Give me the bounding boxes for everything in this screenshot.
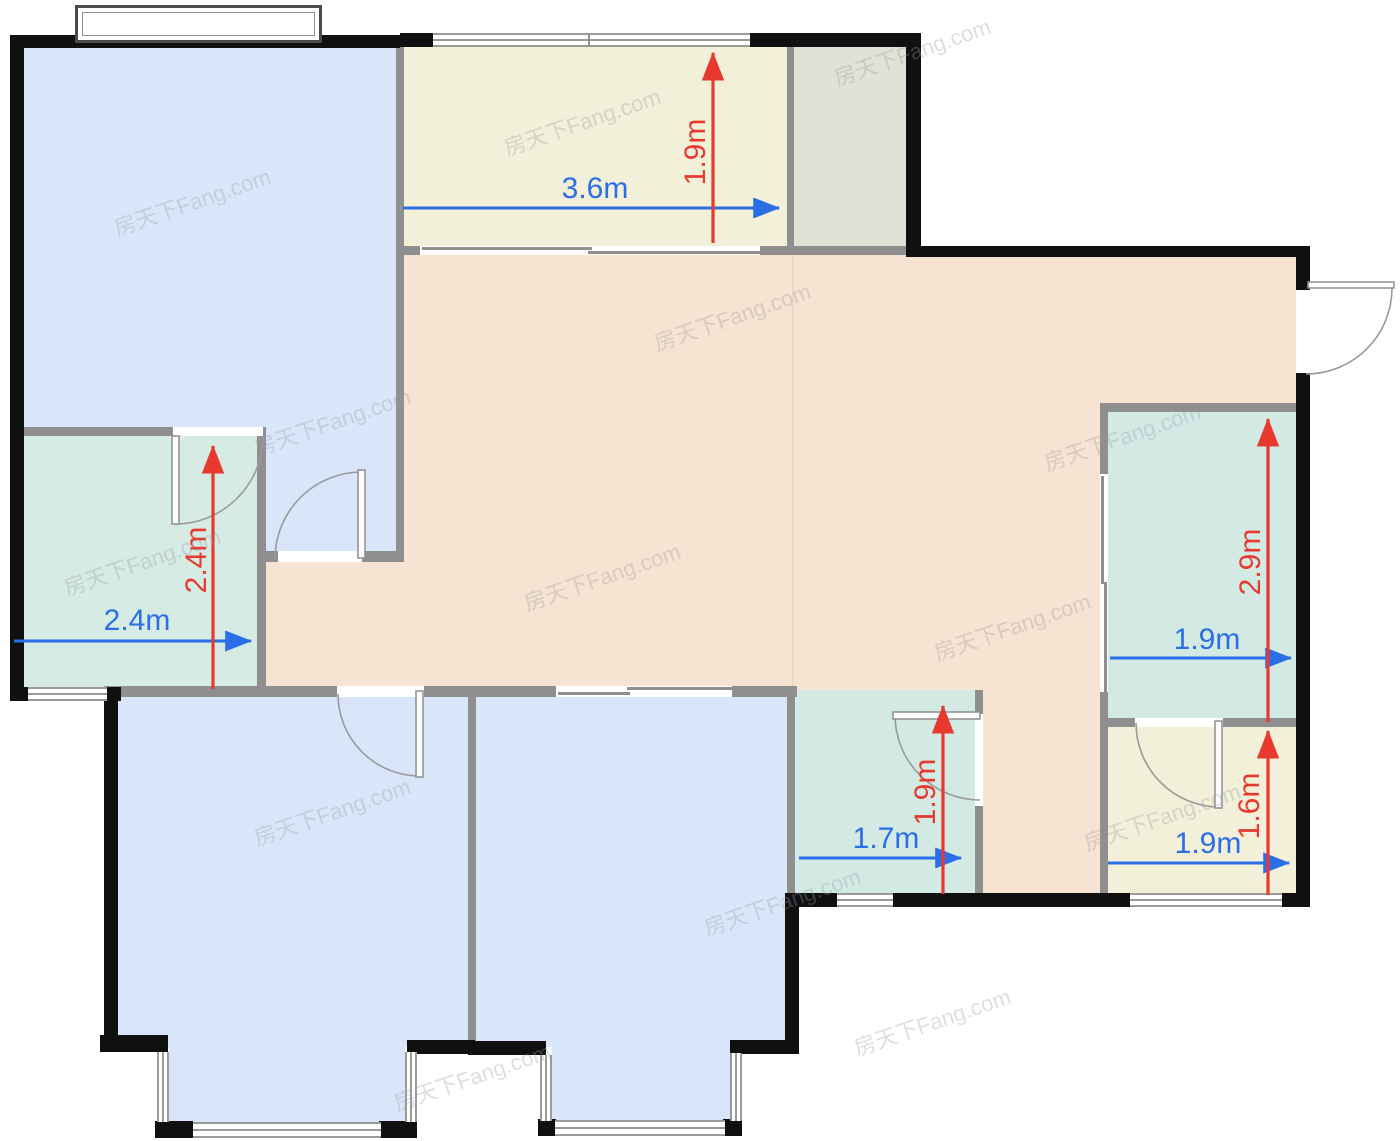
door-opening bbox=[337, 686, 424, 697]
wall-exterior bbox=[538, 1119, 556, 1136]
living-divider-line bbox=[792, 255, 794, 686]
dimension-label: 2.4m bbox=[104, 606, 171, 636]
window bbox=[433, 33, 750, 47]
sliding-door-panel bbox=[588, 251, 760, 254]
wall-exterior bbox=[104, 688, 118, 1040]
sliding-door-panel bbox=[558, 692, 630, 695]
dimension-label: 2.4m bbox=[182, 527, 212, 594]
wall-exterior bbox=[785, 893, 799, 1048]
room-bathroom-left bbox=[24, 430, 264, 690]
room-utility-top-right bbox=[790, 40, 906, 255]
door-opening bbox=[173, 427, 263, 436]
wall-exterior bbox=[723, 1119, 742, 1136]
room-bathroom-middle bbox=[787, 690, 983, 907]
wall-exterior bbox=[790, 33, 921, 47]
wall-segment bbox=[790, 246, 906, 255]
wall-exterior bbox=[1296, 373, 1310, 907]
floor-plan: 3.6m 1.9m 2.4m 2.4m 1.9m 2.9m 1.7m 1.9m … bbox=[0, 0, 1400, 1141]
dimension-label: 1.9m bbox=[1175, 829, 1242, 859]
room-bedroom-bottom-left bbox=[110, 690, 475, 1047]
sliding-door-panel bbox=[627, 687, 732, 690]
wall-exterior bbox=[975, 893, 1105, 907]
dimension-label: 1.6m bbox=[1235, 773, 1265, 840]
window bbox=[28, 687, 107, 701]
wall-exterior bbox=[379, 1121, 417, 1138]
wall-segment bbox=[257, 427, 266, 690]
watermark: 房天下Fang.com bbox=[849, 979, 1014, 1063]
wall-exterior bbox=[730, 1040, 799, 1054]
door-opening bbox=[278, 551, 362, 562]
wall-exterior bbox=[106, 687, 121, 701]
wall-exterior bbox=[906, 33, 921, 257]
window bbox=[193, 1122, 381, 1138]
window bbox=[157, 1052, 169, 1122]
wall-exterior bbox=[1296, 246, 1310, 290]
dimension-label: 1.9m bbox=[1174, 625, 1241, 655]
wall-exterior bbox=[891, 893, 978, 907]
dimension-label: 3.6m bbox=[562, 174, 629, 204]
room-bathroom-right bbox=[1103, 405, 1308, 725]
room-balcony-top bbox=[400, 40, 790, 255]
wall-exterior bbox=[10, 35, 24, 700]
window bbox=[540, 1055, 552, 1121]
sliding-door-panel bbox=[1104, 582, 1107, 692]
bay-bedroom-left bbox=[169, 1047, 405, 1122]
door-opening bbox=[1296, 290, 1310, 373]
wall-exterior bbox=[10, 687, 29, 701]
sliding-door-panel bbox=[1101, 476, 1104, 584]
door-opening bbox=[975, 714, 983, 806]
room-living-corridor bbox=[983, 690, 1105, 907]
room-bottom-right bbox=[1103, 723, 1308, 907]
wall-exterior bbox=[400, 33, 434, 47]
window-mullion bbox=[588, 34, 590, 46]
sliding-door-panel bbox=[422, 247, 592, 250]
window bbox=[837, 893, 893, 907]
window bbox=[1130, 893, 1282, 907]
door-opening bbox=[1135, 718, 1223, 727]
window bbox=[405, 1052, 417, 1122]
wall-exterior bbox=[407, 1040, 475, 1054]
dimension-label: 1.9m bbox=[681, 119, 711, 186]
bay-window-top bbox=[75, 5, 322, 43]
wall-segment bbox=[787, 690, 795, 893]
room-bedroom-bottom-right bbox=[475, 690, 797, 1047]
wall-exterior bbox=[906, 246, 1310, 257]
dimension-label: 1.9m bbox=[911, 759, 941, 826]
wall-exterior bbox=[750, 33, 792, 47]
window bbox=[730, 1053, 742, 1121]
dimension-label: 1.7m bbox=[853, 824, 920, 854]
wall-segment bbox=[396, 44, 404, 557]
bay-bedroom-right bbox=[552, 1047, 730, 1120]
wall-segment bbox=[468, 690, 476, 1042]
wall-exterior bbox=[468, 1041, 546, 1055]
dimension-label: 2.9m bbox=[1236, 529, 1266, 596]
wall-segment bbox=[787, 40, 794, 246]
wall-segment bbox=[1103, 403, 1303, 412]
wall-segment bbox=[1100, 723, 1108, 893]
window bbox=[555, 1120, 725, 1136]
wall-exterior bbox=[155, 1121, 193, 1138]
wall-exterior bbox=[1280, 893, 1310, 907]
